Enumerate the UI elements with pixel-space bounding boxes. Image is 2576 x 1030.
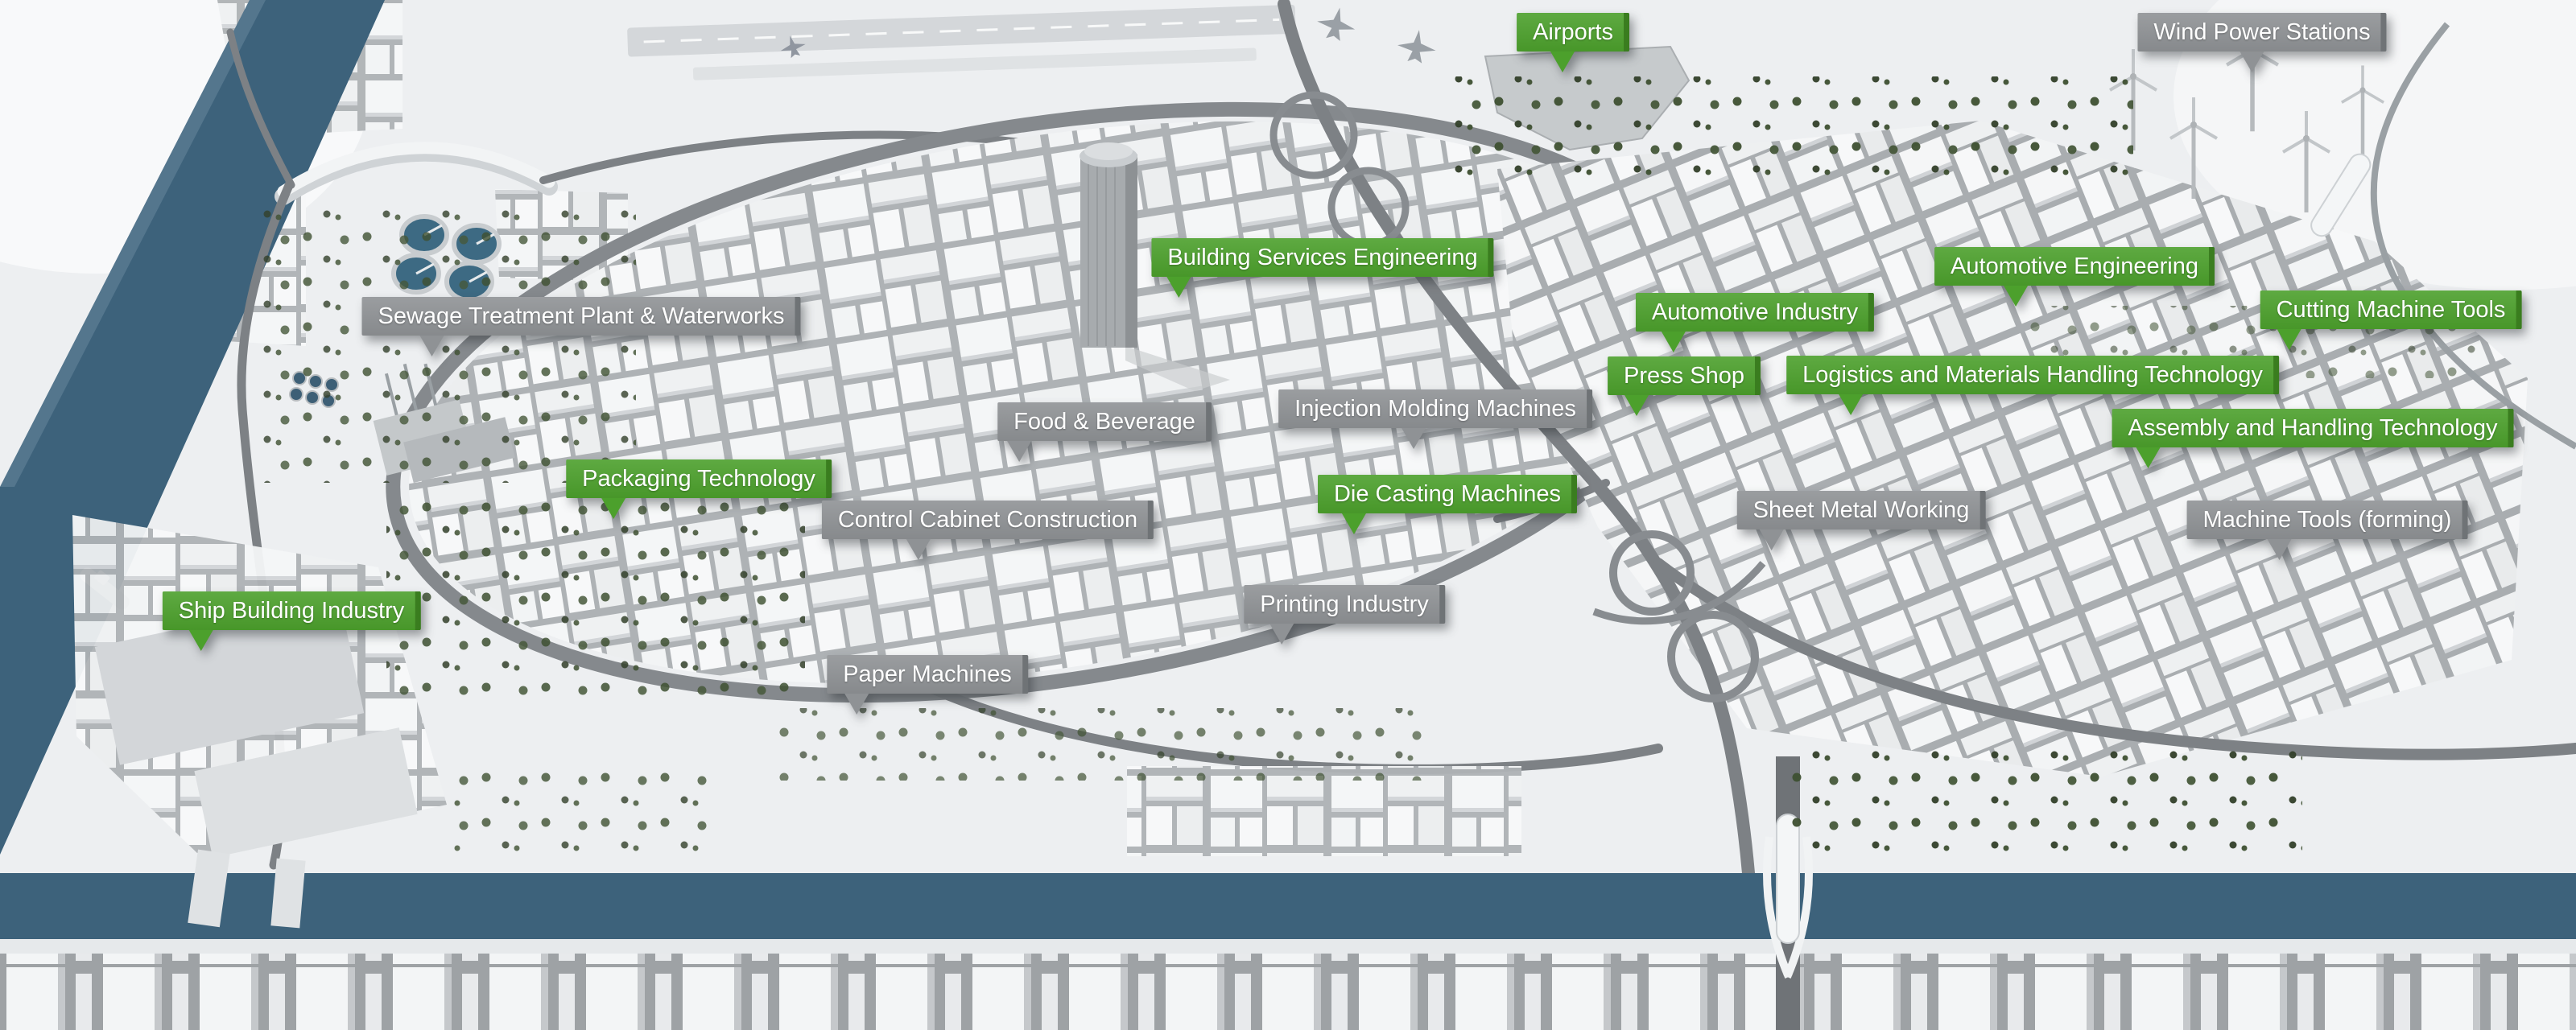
label-fold-edge	[826, 459, 832, 498]
label-text: Logistics and Materials Handling Technol…	[1802, 362, 2263, 388]
label-pointer	[420, 336, 444, 356]
label-fold-edge	[1022, 655, 1028, 694]
label-fold-edge	[1868, 293, 1874, 332]
label-pointer	[1007, 441, 1031, 462]
label-pointer	[602, 498, 626, 519]
map-label-die-casting[interactable]: Die Casting Machines	[1318, 475, 1577, 513]
map-label-cutting-machine-tools[interactable]: Cutting Machine Tools	[2260, 290, 2522, 329]
label-fold-edge	[1587, 389, 1592, 428]
map-label-logistics-handling[interactable]: Logistics and Materials Handling Technol…	[1786, 356, 2279, 394]
label-text: Assembly and Handling Technology	[2128, 415, 2498, 441]
label-fold-edge	[1755, 356, 1761, 395]
label-fold-edge	[2273, 356, 2279, 394]
label-pointer	[1624, 395, 1649, 416]
label-fold-edge	[1439, 585, 1445, 624]
map-label-building-services[interactable]: Building Services Engineering	[1151, 238, 1493, 277]
map-label-press-shop[interactable]: Press Shop	[1608, 356, 1761, 395]
label-pointer	[2268, 539, 2292, 560]
label-text: Sheet Metal Working	[1753, 497, 1970, 523]
map-label-control-cabinet[interactable]: Control Cabinet Construction	[822, 501, 1154, 539]
label-pointer	[906, 539, 930, 560]
label-pointer	[1760, 529, 1784, 550]
label-pointer	[189, 630, 213, 651]
label-pointer	[845, 694, 869, 715]
label-text: Machine Tools (forming)	[2203, 507, 2452, 533]
map-label-packaging-tech[interactable]: Packaging Technology	[566, 459, 832, 498]
label-text: Automotive Engineering	[1951, 253, 2198, 279]
label-pointer	[2240, 51, 2264, 72]
label-fold-edge	[1624, 13, 1629, 51]
label-text: Food & Beverage	[1013, 409, 1195, 435]
label-pointer	[2277, 329, 2301, 350]
label-fold-edge	[1979, 491, 1985, 529]
label-text: Cutting Machine Tools	[2277, 297, 2506, 323]
label-pointer	[1839, 394, 1863, 415]
map-label-wind-power-stations[interactable]: Wind Power Stations	[2137, 13, 2386, 51]
label-text: Building Services Engineering	[1167, 245, 1477, 270]
label-text: Ship Building Industry	[179, 598, 405, 624]
map-label-airports[interactable]: Airports	[1517, 13, 1629, 51]
map-label-automotive-eng[interactable]: Automotive Engineering	[1934, 247, 2215, 286]
label-fold-edge	[1206, 402, 1212, 441]
label-text: Press Shop	[1624, 363, 1744, 389]
city-map: Airports Wind Power Stations Building Se…	[0, 0, 2576, 1030]
label-text: Airports	[1533, 19, 1613, 45]
label-layer: Airports Wind Power Stations Building Se…	[0, 0, 2576, 1030]
map-label-injection-molding[interactable]: Injection Molding Machines	[1278, 389, 1592, 428]
label-text: Automotive Industry	[1652, 299, 1858, 325]
label-pointer	[1550, 51, 1575, 72]
label-text: Wind Power Stations	[2153, 19, 2370, 45]
map-label-machine-tools-forming[interactable]: Machine Tools (forming)	[2187, 501, 2468, 539]
map-label-sewage-waterworks[interactable]: Sewage Treatment Plant & Waterworks	[361, 297, 800, 336]
label-text: Printing Industry	[1260, 591, 1429, 617]
label-pointer	[1270, 624, 1294, 645]
label-fold-edge	[415, 591, 420, 630]
label-pointer	[1166, 277, 1191, 298]
label-pointer	[1342, 513, 1366, 534]
map-label-sheet-metal[interactable]: Sheet Metal Working	[1737, 491, 1986, 529]
label-pointer	[1402, 428, 1426, 449]
label-text: Control Cabinet Construction	[838, 507, 1137, 533]
map-label-food-beverage[interactable]: Food & Beverage	[997, 402, 1212, 441]
label-pointer	[1662, 332, 1686, 352]
label-fold-edge	[2508, 409, 2513, 447]
label-text: Injection Molding Machines	[1294, 396, 1576, 422]
label-fold-edge	[2462, 501, 2467, 539]
map-label-paper-machines[interactable]: Paper Machines	[827, 655, 1028, 694]
label-text: Die Casting Machines	[1334, 481, 1561, 507]
label-text: Paper Machines	[843, 661, 1012, 687]
label-fold-edge	[2209, 247, 2215, 286]
label-fold-edge	[2381, 13, 2387, 51]
label-fold-edge	[1488, 238, 1494, 277]
label-fold-edge	[2516, 290, 2521, 329]
map-label-automotive-industry[interactable]: Automotive Industry	[1636, 293, 1874, 332]
label-text: Packaging Technology	[582, 466, 815, 492]
map-label-printing-industry[interactable]: Printing Industry	[1244, 585, 1445, 624]
label-text: Sewage Treatment Plant & Waterworks	[378, 303, 784, 329]
label-fold-edge	[1148, 501, 1154, 539]
label-pointer	[2004, 286, 2028, 307]
map-label-assembly-handling[interactable]: Assembly and Handling Technology	[2112, 409, 2514, 447]
label-fold-edge	[795, 297, 801, 336]
map-label-ship-building[interactable]: Ship Building Industry	[163, 591, 421, 630]
label-pointer	[2136, 447, 2160, 468]
label-fold-edge	[1571, 475, 1577, 513]
